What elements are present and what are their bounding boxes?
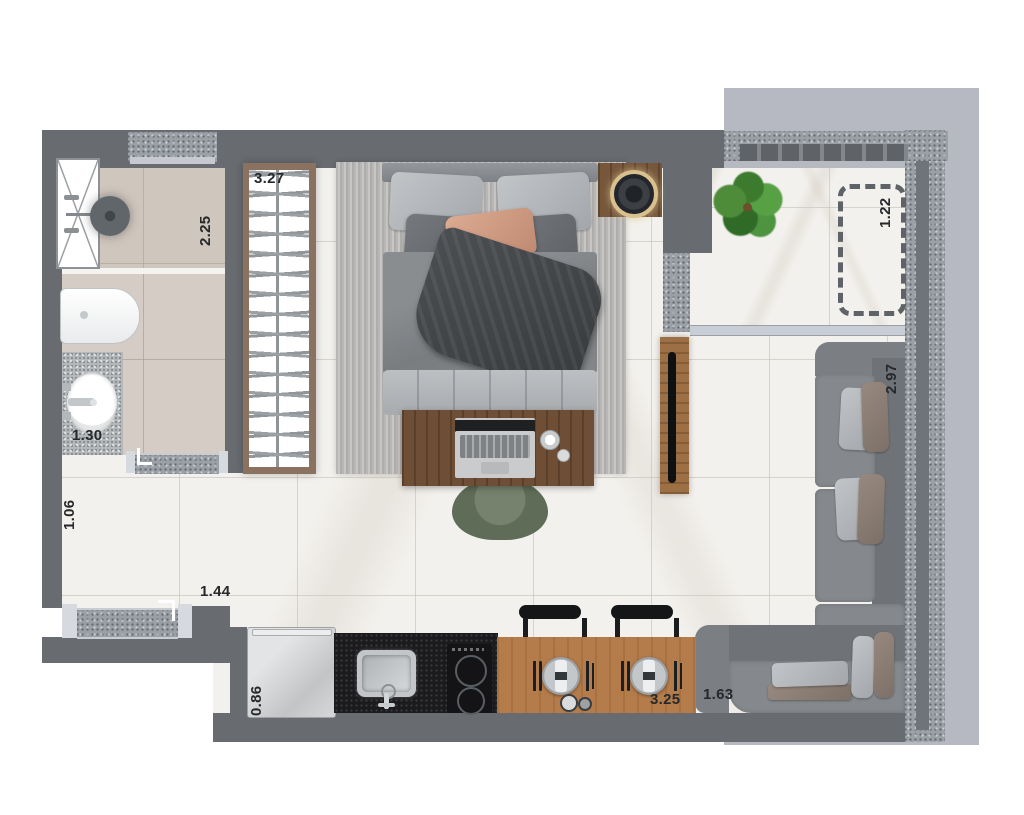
fork xyxy=(533,661,536,691)
bedroom-balcony-wall xyxy=(663,168,712,253)
reserved-area-dashed xyxy=(838,184,906,316)
napkin-ring xyxy=(555,672,567,680)
dimension-kitchen: 3.25 xyxy=(650,692,680,708)
bathroom-window-sill xyxy=(130,157,215,164)
desk-item xyxy=(557,449,570,462)
dimension-wardrobe: 3.27 xyxy=(254,171,284,187)
dimension-shower: 2.25 xyxy=(198,182,214,246)
bathroom-door-jamb xyxy=(219,451,228,473)
kitchen-faucet-handle xyxy=(378,703,395,707)
knife xyxy=(586,661,589,691)
shower-head xyxy=(90,196,130,236)
desk-cup xyxy=(540,430,560,450)
dimension-living-wall: 2.97 xyxy=(884,334,900,394)
sofa-pillow xyxy=(874,632,894,698)
bed-foot-mattress xyxy=(383,370,597,415)
entry-door-jamb xyxy=(62,604,77,638)
spoon xyxy=(627,661,630,691)
folded-blanket-top xyxy=(772,661,849,688)
cooktop-controls xyxy=(452,648,484,651)
salt-shaker xyxy=(560,694,578,712)
desk-chair xyxy=(452,478,548,540)
sofa-pillow xyxy=(857,474,885,545)
balcony-glass-door xyxy=(690,325,905,336)
dimension-chaise: 1.63 xyxy=(703,687,733,703)
dining-chair-frame xyxy=(523,618,587,637)
bathroom-door-jamb xyxy=(126,451,135,473)
dining-chair xyxy=(611,605,673,619)
bathroom-door-symbol xyxy=(137,448,152,465)
exterior-mask-bottomleft xyxy=(0,663,213,815)
fridge-handle xyxy=(252,629,332,636)
dimension-entry: 1.44 xyxy=(200,584,230,600)
laptop-trackpad xyxy=(481,462,509,474)
plant-pot-center xyxy=(743,203,752,212)
spoon xyxy=(539,661,542,691)
dimension-balcony: 1.22 xyxy=(878,172,894,228)
entry-door-jamb xyxy=(178,604,192,638)
knife xyxy=(680,663,682,689)
floor-plan: 2.25 3.27 1.22 2.97 1.30 1.06 1.44 0.86 … xyxy=(0,0,1024,815)
faucet-knob xyxy=(63,384,71,391)
dining-chair xyxy=(519,605,581,619)
toilet xyxy=(60,288,140,344)
dimension-fridge: 0.86 xyxy=(249,670,265,716)
balcony-pillar xyxy=(663,253,690,332)
cooktop-burner xyxy=(455,655,487,687)
entry-side-wall xyxy=(192,606,230,663)
knife xyxy=(592,663,594,689)
cooktop-burner xyxy=(457,687,485,715)
balcony-railing xyxy=(740,144,908,161)
dimension-hall: 1.06 xyxy=(62,474,78,530)
knife xyxy=(674,661,677,691)
fork xyxy=(621,661,624,691)
entry-door-symbol xyxy=(158,600,175,621)
faucet-knob xyxy=(63,412,71,419)
laptop-keyboard xyxy=(460,435,530,458)
wardrobe-hanger-rail xyxy=(249,170,309,467)
table-lamp xyxy=(610,170,658,218)
toilet-button xyxy=(80,311,88,319)
dimension-vanity: 1.30 xyxy=(72,428,102,444)
napkin-ring xyxy=(643,672,655,680)
bathroom-right-wall xyxy=(225,130,245,473)
dining-chair-frame xyxy=(615,618,679,637)
sofa-pillow xyxy=(851,636,875,699)
faucet-dot xyxy=(90,399,97,406)
pepper-shaker xyxy=(578,697,592,711)
window-glass xyxy=(916,152,929,730)
shower-valve xyxy=(64,228,79,233)
tv xyxy=(668,352,676,483)
shower-valve xyxy=(64,195,79,200)
